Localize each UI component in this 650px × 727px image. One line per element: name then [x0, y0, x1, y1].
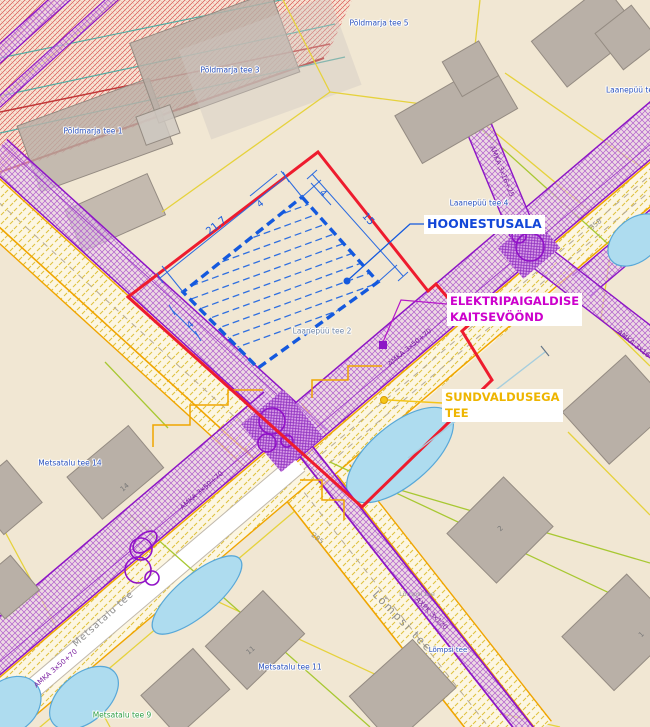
map-canvas[interactable]: AMKA 3x50+70 AMKA 3x50+70 AMKA 3x50+70 A… — [0, 0, 650, 727]
address-label-laanepuu4: Laanepüü tee 4 — [450, 199, 509, 208]
callout-sund-line1: SUNDVALDUSEGA — [445, 390, 560, 406]
callout-sundvaldusega-tee: SUNDVALDUSEGA TEE — [442, 389, 563, 422]
address-label-poldmarja3: Põldmarja tee 3 — [200, 66, 259, 75]
callout-sund-line2: TEE — [445, 406, 560, 422]
callout-elektri-line2: KAITSEVÖÖND — [450, 310, 579, 326]
road-name: Lõmpsi tee — [399, 590, 435, 598]
address-label-poldmarja1: Põldmarja tee 1 — [63, 127, 122, 136]
address-label-metsatalu9: Metsatalu tee 9 — [93, 711, 152, 720]
address-label-metsatalu11: Metsatalu tee 11 — [258, 663, 321, 672]
callout-hoonestusala: HOONESTUSALA — [424, 215, 545, 234]
map-graphics: AMKA 3x50+70 AMKA 3x50+70 AMKA 3x50+70 A… — [0, 0, 650, 727]
address-label-lompsi: Lõmpsi tee — [429, 646, 468, 654]
callout-elektri-line1: ELEKTRIPAIGALDISE — [450, 294, 579, 310]
address-label-laanepuu2: Laanepüü tee 2 — [293, 327, 352, 336]
address-label-metsatalu14: Metsatalu tee 14 — [38, 459, 101, 468]
address-label-poldmarja5: Põldmarja tee 5 — [349, 19, 408, 28]
callout-elektripaigaldise-kaitsevoond: ELEKTRIPAIGALDISE KAITSEVÖÖND — [447, 293, 582, 326]
address-label-laanepuu6: Laanepüü te — [606, 86, 650, 95]
